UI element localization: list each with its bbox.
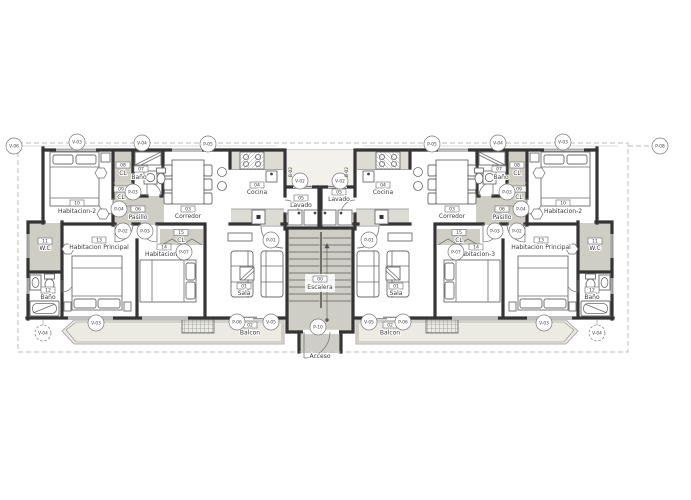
svg-text:W.C: W.C xyxy=(39,245,50,252)
svg-text:CL: CL xyxy=(177,237,185,244)
svg-text:Habitacion Principal: Habitacion Principal xyxy=(69,244,129,251)
svg-text:P-02: P-02 xyxy=(118,229,128,235)
svg-text:CL: CL xyxy=(515,194,523,201)
door-tag: P-05 xyxy=(200,136,216,152)
svg-text:P-02: P-02 xyxy=(512,229,522,235)
svg-text:V-03: V-03 xyxy=(558,140,568,146)
svg-text:11: 11 xyxy=(42,239,48,245)
window-tag: V-04 xyxy=(134,135,150,151)
svg-text:Corredor: Corredor xyxy=(175,213,202,220)
svg-text:Cocina: Cocina xyxy=(373,189,394,196)
svg-text:12: 12 xyxy=(589,288,595,294)
svg-text:Baño: Baño xyxy=(584,294,600,301)
window-tag: V-03 xyxy=(555,134,571,150)
svg-text:09: 09 xyxy=(118,187,124,193)
svg-text:02: 02 xyxy=(247,323,253,329)
door-tag: P-08 xyxy=(652,138,668,154)
door-tag: P-03 xyxy=(125,184,141,200)
door-tag: P-02 xyxy=(509,223,525,239)
door-tag: P-06 xyxy=(229,314,245,330)
window-tag: V-04 xyxy=(589,325,605,341)
svg-text:P-06: P-06 xyxy=(232,320,242,326)
svg-text:05: 05 xyxy=(336,190,342,196)
label-bano2-right: 12Baño xyxy=(584,287,600,301)
svg-text:P-07: P-07 xyxy=(179,250,189,256)
svg-text:07: 07 xyxy=(138,167,144,173)
svg-text:CL: CL xyxy=(119,170,127,177)
svg-text:V-06: V-06 xyxy=(9,144,19,150)
svg-text:05: 05 xyxy=(298,196,304,202)
svg-text:V-05: V-05 xyxy=(364,320,374,326)
door-tag: P-04 xyxy=(111,201,127,217)
label-corredor-right: 03Corredor xyxy=(439,206,466,220)
svg-text:01: 01 xyxy=(241,284,247,290)
svg-text:10: 10 xyxy=(74,201,80,207)
svg-text:Habitacion-2: Habitacion-2 xyxy=(58,208,96,215)
label-bano2-left: 12Baño xyxy=(40,287,56,301)
svg-text:01: 01 xyxy=(393,284,399,290)
svg-text:Baño: Baño xyxy=(493,174,509,181)
label-cocina-left: 04Cocina xyxy=(247,182,268,196)
svg-text:Escalera: Escalera xyxy=(307,284,333,291)
svg-text:P-08: P-08 xyxy=(655,144,665,150)
floor-plan-page: 10Habitacion-2 10Habitacion-2 08CL 08CL … xyxy=(0,0,691,500)
svg-text:V-02: V-02 xyxy=(295,179,305,185)
svg-text:13: 13 xyxy=(538,238,544,244)
label-principal-left: 13Habitacion Principal xyxy=(69,237,129,251)
svg-text:10: 10 xyxy=(560,201,566,207)
label-wc-right: 11W.C xyxy=(588,238,602,252)
svg-text:Corredor: Corredor xyxy=(439,213,466,220)
window-tag: V-05 xyxy=(263,314,279,330)
floor-plan-drawing: 10Habitacion-2 10Habitacion-2 08CL 08CL … xyxy=(0,0,691,500)
svg-text:15: 15 xyxy=(178,230,184,236)
svg-text:V-03: V-03 xyxy=(539,321,549,327)
label-wc-left: 11W.C xyxy=(38,238,52,252)
svg-text:04: 04 xyxy=(254,183,260,189)
window-tag: V-05 xyxy=(361,314,377,330)
door-tag: P-03 xyxy=(137,223,153,239)
door-tag: P-01 xyxy=(361,232,377,248)
label-lavado-left: 05Lavado xyxy=(290,195,312,209)
svg-text:00: 00 xyxy=(317,277,323,283)
svg-text:V-03: V-03 xyxy=(91,321,101,327)
svg-text:P-10: P-10 xyxy=(313,325,323,331)
door-tag: P-07 xyxy=(176,244,192,260)
duct-tag: B-02 xyxy=(344,167,350,177)
svg-text:P-03: P-03 xyxy=(128,190,138,196)
svg-text:Baño: Baño xyxy=(40,294,56,301)
svg-text:P-01: P-01 xyxy=(266,238,276,244)
svg-text:07: 07 xyxy=(496,167,502,173)
svg-text:04: 04 xyxy=(380,183,386,189)
entry-porch-floor xyxy=(299,334,341,351)
svg-text:P-04: P-04 xyxy=(114,207,124,213)
svg-text:03: 03 xyxy=(185,207,191,213)
svg-text:08: 08 xyxy=(514,163,520,169)
svg-text:Habitacion-2: Habitacion-2 xyxy=(544,208,582,215)
svg-text:CL: CL xyxy=(117,194,125,201)
window-tag: V-04 xyxy=(35,325,51,341)
window-tag: V-03 xyxy=(88,315,104,331)
label-acceso: Acceso xyxy=(309,353,330,360)
svg-text:V-05: V-05 xyxy=(266,320,276,326)
svg-text:Habitacion Principal: Habitacion Principal xyxy=(511,244,571,251)
label-bano-left: 07Baño xyxy=(131,166,148,181)
label-sala-right: 01Sala xyxy=(389,283,403,297)
svg-text:02: 02 xyxy=(387,323,393,329)
svg-text:15: 15 xyxy=(456,230,462,236)
window-tag: V-03 xyxy=(69,134,85,150)
door-tag: P-02 xyxy=(115,223,131,239)
svg-text:P-05: P-05 xyxy=(427,142,437,148)
svg-text:Sala: Sala xyxy=(390,290,403,297)
svg-text:V-04: V-04 xyxy=(137,141,147,147)
label-corredor-left: 03Corredor xyxy=(175,206,202,220)
svg-text:03: 03 xyxy=(449,207,455,213)
svg-text:P-03: P-03 xyxy=(490,229,500,235)
svg-text:14: 14 xyxy=(161,245,167,251)
svg-text:V-04: V-04 xyxy=(38,331,48,337)
svg-text:06: 06 xyxy=(135,207,141,213)
window-tag: V-03 xyxy=(536,315,552,331)
svg-text:Balcon: Balcon xyxy=(380,330,400,337)
window-tag: V-02 xyxy=(292,173,308,189)
label-sala-left: 01Sala xyxy=(237,283,251,297)
svg-text:V-04: V-04 xyxy=(592,331,602,337)
svg-text:V-04: V-04 xyxy=(493,141,503,147)
label-principal-right: 13Habitacion Principal xyxy=(511,237,571,251)
svg-text:Lavado: Lavado xyxy=(290,202,312,209)
svg-text:P-03: P-03 xyxy=(140,229,150,235)
label-pasillo-left: 06Pasillo xyxy=(129,206,148,221)
svg-text:09: 09 xyxy=(516,187,522,193)
svg-text:P-04: P-04 xyxy=(516,207,526,213)
svg-text:12: 12 xyxy=(45,288,51,294)
svg-text:14: 14 xyxy=(473,245,479,251)
svg-text:V-02: V-02 xyxy=(335,179,345,185)
svg-text:08: 08 xyxy=(120,163,126,169)
svg-text:06: 06 xyxy=(499,207,505,213)
svg-text:11: 11 xyxy=(592,239,598,245)
svg-text:P-06: P-06 xyxy=(398,320,408,326)
svg-text:Cocina: Cocina xyxy=(247,189,268,196)
svg-text:Sala: Sala xyxy=(238,290,251,297)
stair-core xyxy=(287,228,353,358)
svg-text:Balcon: Balcon xyxy=(240,330,260,337)
door-tag: P-03 xyxy=(487,223,503,239)
svg-text:Acceso: Acceso xyxy=(309,353,330,360)
svg-text:Pasillo: Pasillo xyxy=(129,214,148,221)
svg-text:Lavado: Lavado xyxy=(328,196,350,203)
svg-text:CL: CL xyxy=(513,170,521,177)
svg-text:13: 13 xyxy=(96,238,102,244)
door-tag: P-04 xyxy=(513,201,529,217)
door-tag: P-01 xyxy=(263,232,279,248)
svg-text:W.C: W.C xyxy=(589,245,600,252)
svg-text:CL: CL xyxy=(455,237,463,244)
door-tag: P-07 xyxy=(448,244,464,260)
svg-text:P-07: P-07 xyxy=(451,250,461,256)
svg-text:Pasillo: Pasillo xyxy=(493,214,512,221)
label-escalera: 00Escalera xyxy=(305,274,335,292)
svg-text:Baño: Baño xyxy=(131,174,147,181)
door-tag: P-03 xyxy=(499,184,515,200)
svg-text:P-01: P-01 xyxy=(364,238,374,244)
label-cocina-right: 04Cocina xyxy=(373,182,394,196)
window-tag: V-04 xyxy=(490,135,506,151)
door-tag: P-06 xyxy=(395,314,411,330)
svg-text:P-03: P-03 xyxy=(502,190,512,196)
svg-text:V-03: V-03 xyxy=(72,140,82,146)
label-pasillo-right: 06Pasillo xyxy=(493,206,512,221)
window-tag: V-06 xyxy=(6,138,22,154)
duct-tag: B-02 xyxy=(288,167,294,177)
svg-text:P-05: P-05 xyxy=(203,142,213,148)
label-lavado-right: 05Lavado xyxy=(328,189,350,203)
door-tag: P-10 xyxy=(310,319,326,335)
door-tag: P-05 xyxy=(424,136,440,152)
